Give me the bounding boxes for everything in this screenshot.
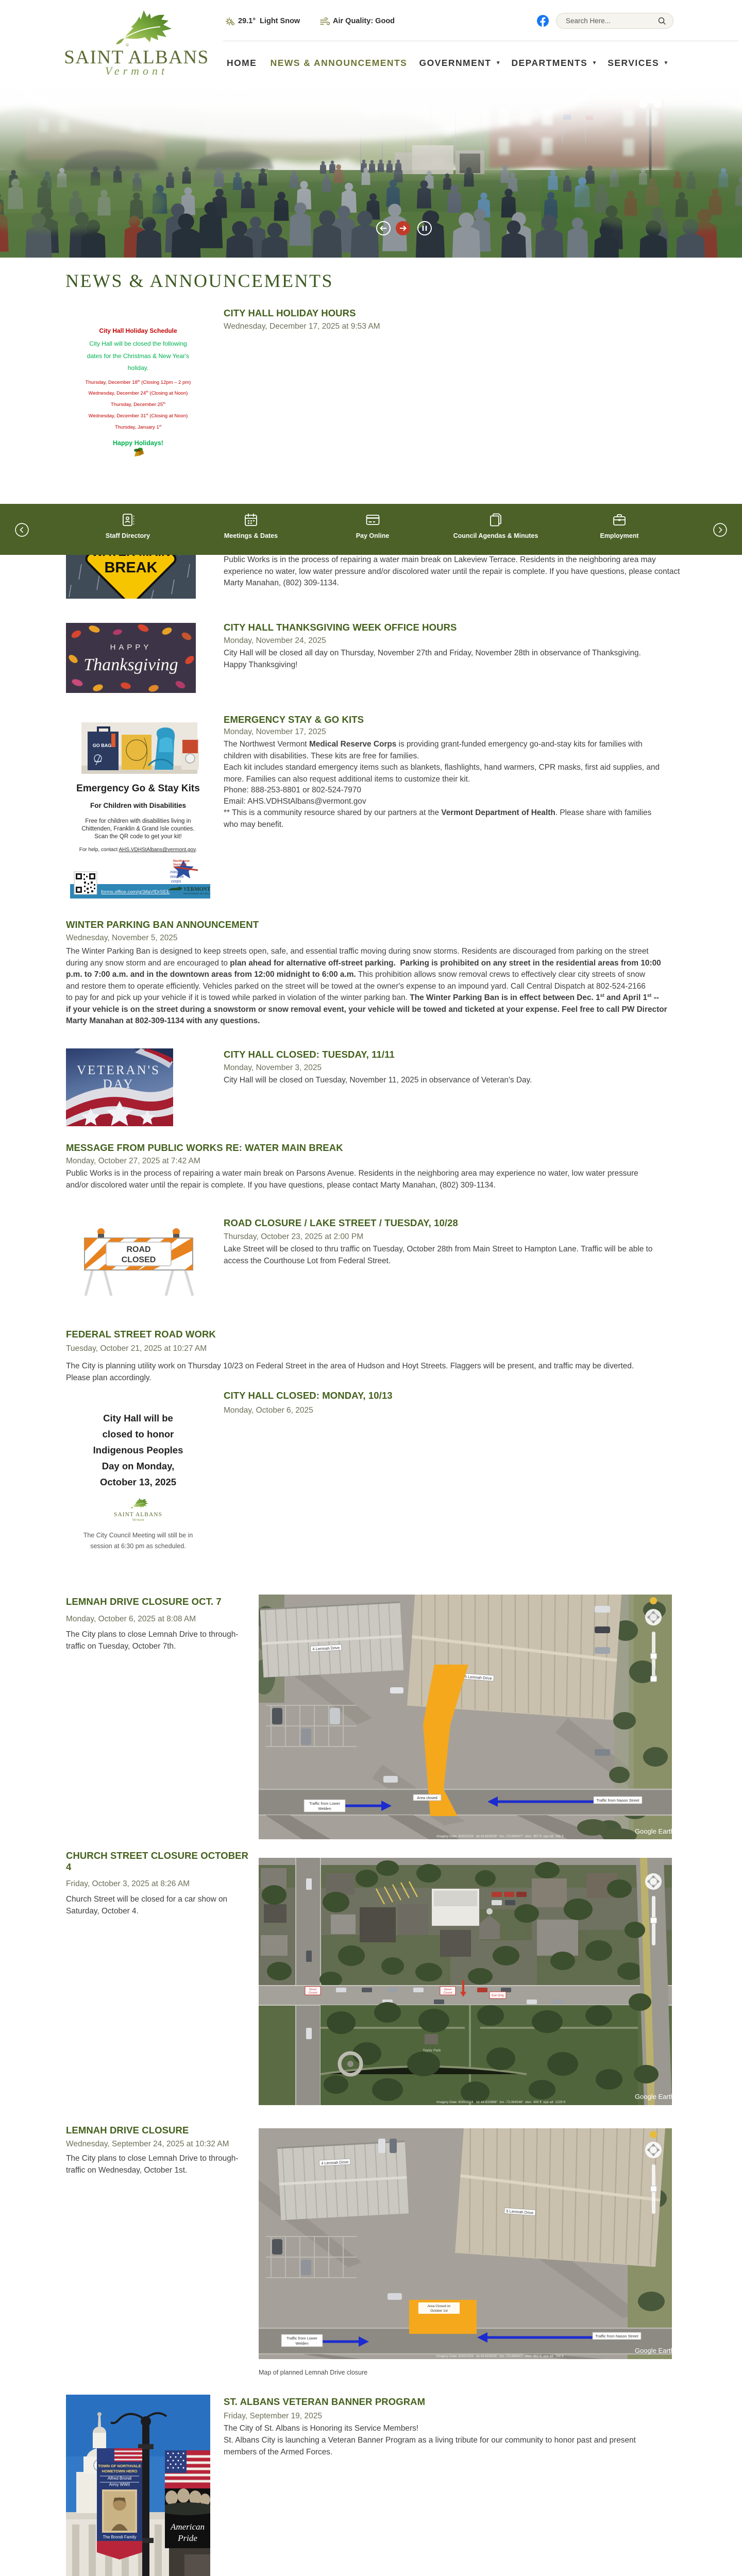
svg-text:Traffic from Nason Street: Traffic from Nason Street xyxy=(596,1798,639,1803)
svg-text:Traffic from Lower: Traffic from Lower xyxy=(286,2336,318,2341)
svg-text:Closed: Closed xyxy=(308,1992,317,1995)
svg-text:Pride: Pride xyxy=(177,2533,197,2543)
svg-text:October 1st: October 1st xyxy=(430,2309,448,2313)
svg-text:Army WWII: Army WWII xyxy=(109,2482,130,2487)
svg-text:Street: Street xyxy=(444,1988,452,1991)
svg-text:medical: medical xyxy=(170,870,184,874)
svg-text:Google Earth: Google Earth xyxy=(635,2093,672,2100)
svg-text:Welden: Welden xyxy=(295,2341,308,2346)
svg-text:DEPARTMENT OF HEALTH: DEPARTMENT OF HEALTH xyxy=(183,892,210,895)
svg-text:Imagery Date: 6/30/2024 lat: Imagery Date: 6/30/2024 lat 44.804528° l… xyxy=(436,1834,564,1838)
svg-text:CLOSED: CLOSED xyxy=(122,1256,156,1264)
svg-text:Welden: Welden xyxy=(318,1806,331,1811)
svg-text:Google Earth: Google Earth xyxy=(635,1827,672,1835)
svg-text:BREAK: BREAK xyxy=(104,560,157,576)
svg-text:corps: corps xyxy=(171,879,181,884)
svg-text:Traffic from Lower: Traffic from Lower xyxy=(309,1801,341,1806)
svg-text:VERMONT: VERMONT xyxy=(183,887,210,892)
svg-text:Chittenden, Franklin & Grand I: Chittenden, Franklin & Grand Isle counti… xyxy=(81,826,194,832)
svg-text:American: American xyxy=(170,2522,205,2532)
svg-text:Taylor Park: Taylor Park xyxy=(423,2049,441,2053)
svg-text:HAPPY: HAPPY xyxy=(110,643,152,652)
svg-text:Area Closed on: Area Closed on xyxy=(428,2304,451,2308)
svg-text:Area closed: Area closed xyxy=(417,1795,437,1800)
svg-text:Imagery Date: 6/30/2024 lat: Imagery Date: 6/30/2024 lat 44.804528° l… xyxy=(436,2354,564,2358)
svg-text:Closed: Closed xyxy=(443,1992,452,1995)
svg-text:Emergency Go & Stay Kits: Emergency Go & Stay Kits xyxy=(76,783,200,794)
svg-text:forms.office.com/g/3ifaVfDrSEE: forms.office.com/g/3ifaVfDrSEE xyxy=(101,889,170,895)
svg-text:Thanksgiving: Thanksgiving xyxy=(83,655,178,674)
svg-text:Google Earth: Google Earth xyxy=(635,2347,672,2354)
svg-text:The Brondi Family: The Brondi Family xyxy=(103,2535,137,2539)
svg-text:VETERAN'S: VETERAN'S xyxy=(77,1063,160,1077)
svg-text:Scan the QR code to get your k: Scan the QR code to get your kit! xyxy=(94,834,181,840)
svg-text:Exit Only: Exit Only xyxy=(492,1994,504,1997)
svg-text:For help, contact AHS.VDHStAlb: For help, contact AHS.VDHStAlbans@vermon… xyxy=(79,847,197,853)
svg-text:Northwest: Northwest xyxy=(173,859,190,863)
svg-text:TOWN OF NORTHVALE: TOWN OF NORTHVALE xyxy=(98,2464,141,2468)
svg-text:Vermont: Vermont xyxy=(173,863,187,867)
svg-text:Imagery Date: 6/30/2024 lat: Imagery Date: 6/30/2024 lat 44.810886° l… xyxy=(436,2100,565,2104)
svg-text:ROAD: ROAD xyxy=(126,1245,150,1254)
svg-text:Free for children with disabil: Free for children with disabilities livi… xyxy=(85,818,191,824)
svg-text:reserve: reserve xyxy=(170,874,184,879)
svg-text:Traffic from Nason Street: Traffic from Nason Street xyxy=(595,2334,638,2338)
svg-text:For Children with Disabilities: For Children with Disabilities xyxy=(90,802,186,809)
svg-text:Street: Street xyxy=(309,1988,317,1991)
svg-text:GO BAG: GO BAG xyxy=(93,743,112,748)
svg-text:Alfred Brondi: Alfred Brondi xyxy=(108,2476,131,2481)
svg-text:HOMETOWN HERO: HOMETOWN HERO xyxy=(102,2469,137,2473)
